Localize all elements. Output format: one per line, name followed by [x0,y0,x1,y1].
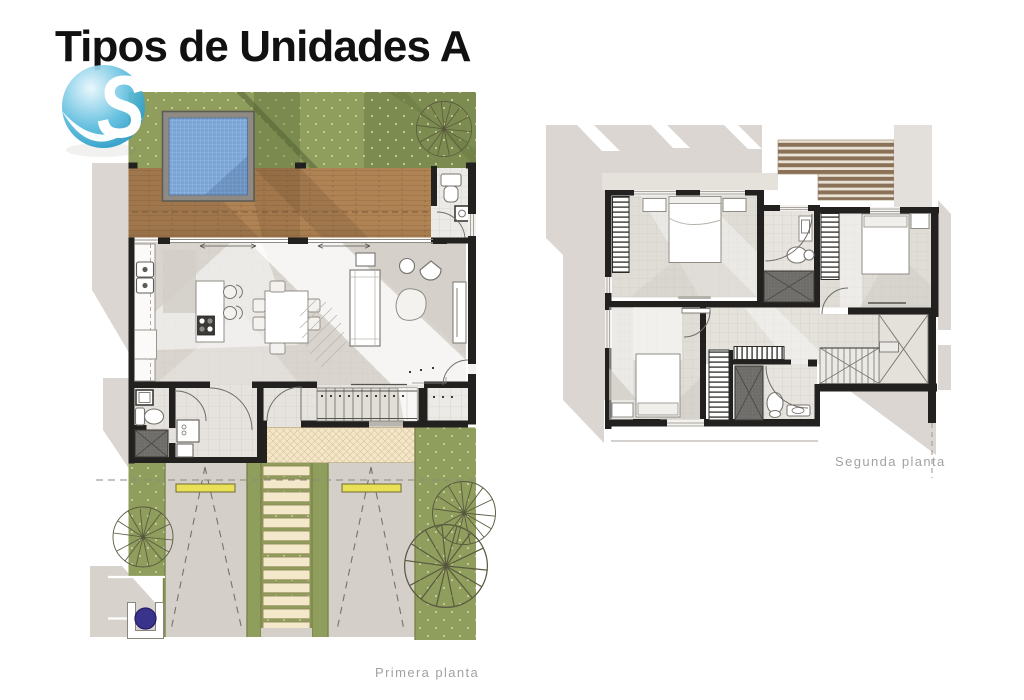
svg-text:Segunda planta: Segunda planta [835,454,946,469]
svg-text:Primera planta: Primera planta [375,665,479,680]
svg-text:S: S [97,58,145,156]
